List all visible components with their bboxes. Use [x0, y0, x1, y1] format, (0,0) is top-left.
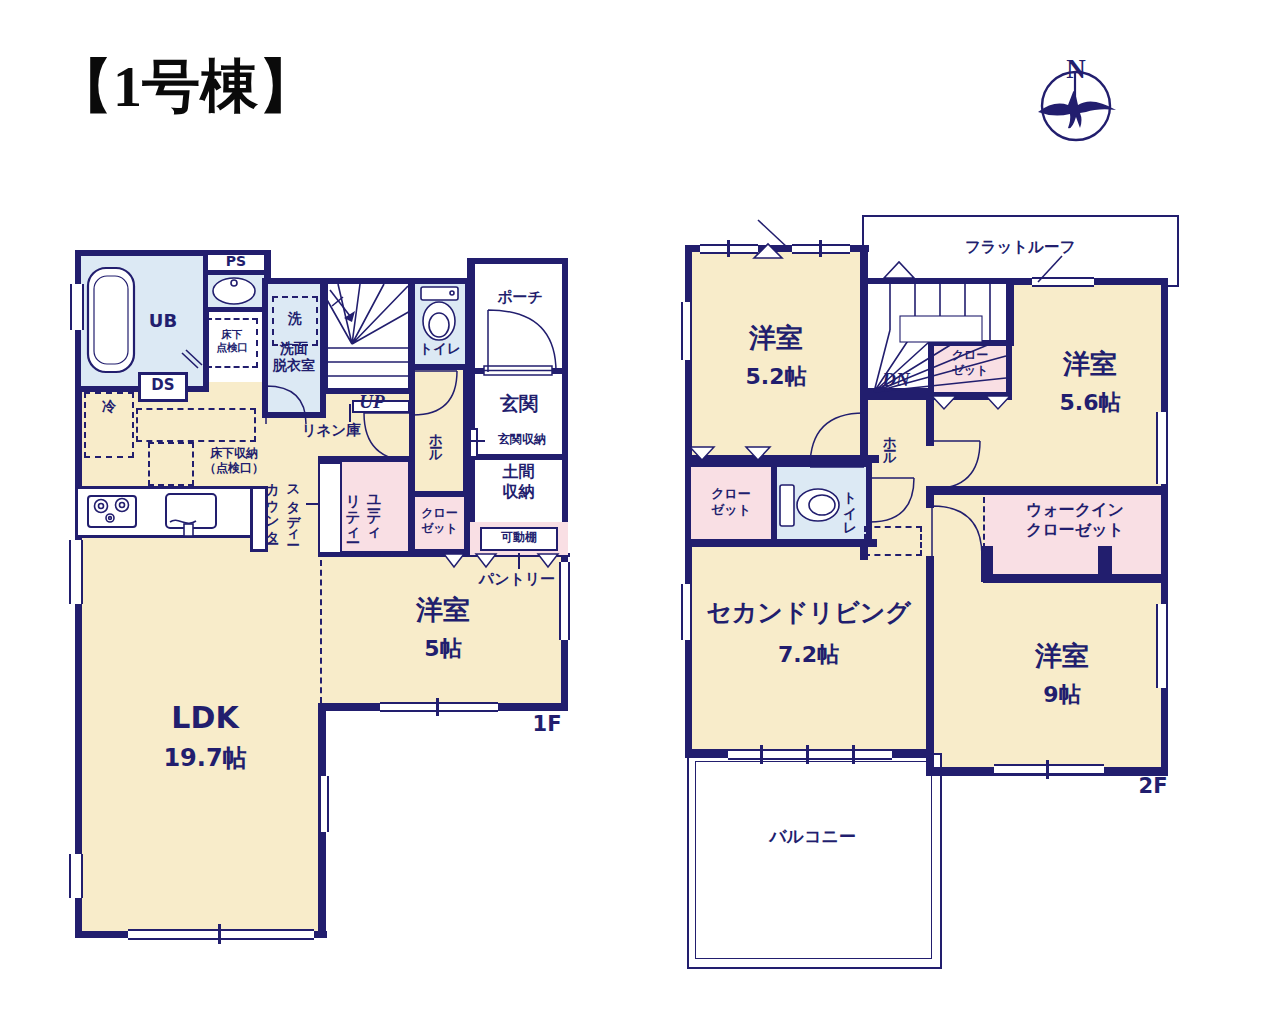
label-closet-1f: クロー ゼット: [410, 506, 469, 535]
window: [994, 764, 1104, 775]
window-tick: [819, 240, 822, 257]
study-counter-top: [318, 462, 342, 554]
label-hall-2f: ホール: [882, 410, 898, 476]
wall: [928, 486, 1168, 495]
window-balcony-sliding: [728, 749, 892, 760]
label-bedroom-1f: 洋室: [393, 594, 493, 627]
room-bedroom56: [1008, 278, 1168, 492]
label-up: UP: [350, 390, 394, 413]
label-entrance-storage: 玄関収納: [480, 432, 564, 447]
label-fridge: 冷: [84, 398, 134, 415]
label-bedroom56-size: 5.6帖: [1040, 390, 1140, 417]
label-linen: リネン庫: [294, 422, 368, 440]
label-washroom: 洗面 脱衣室: [256, 340, 332, 374]
entrance-storage-shelf: [469, 428, 478, 458]
label-movable-shelf: 可動棚: [480, 530, 558, 545]
stairs-1f: [322, 278, 414, 394]
leader-entrance-storage: [467, 440, 485, 442]
label-second-living: セカンドリビング: [687, 598, 930, 629]
label-floor-2f: 2F: [1130, 774, 1176, 800]
label-bedroom9: 洋室: [1012, 640, 1112, 673]
window: [128, 929, 314, 940]
label-entrance: 玄関: [483, 392, 555, 415]
label-hall-1f: ホール: [428, 408, 444, 472]
hall-hatch-outline: [864, 526, 922, 556]
label-bedroom52: 洋室: [696, 322, 856, 355]
label-walk-in-closet: ウォークイン クローゼット: [985, 500, 1165, 539]
window-tick: [436, 698, 439, 716]
balcony-inner-line: [695, 761, 932, 959]
label-ldk: LDK: [150, 700, 260, 737]
label-closet-stairs: クロー ゼット: [930, 348, 1010, 377]
label-pantry: パントリー: [466, 570, 568, 588]
wall: [983, 574, 1168, 583]
wall-stub: [1098, 546, 1112, 582]
window-tick: [1046, 760, 1049, 779]
label-porch: ポーチ: [478, 288, 562, 306]
label-ub: UB: [133, 310, 193, 332]
leader-pantry: [518, 553, 520, 569]
label-bedroom-1f-size: 5帖: [398, 636, 488, 663]
label-balcony: バルコニー: [687, 826, 938, 847]
label-underfloor-hatch: 床下 点検口: [206, 328, 258, 354]
label-ldk-size: 19.7帖: [135, 744, 275, 773]
compass-bird-icon: [1038, 72, 1116, 140]
label-toilet-2f: トイレ: [842, 474, 858, 536]
window: [70, 284, 84, 330]
window: [319, 776, 329, 832]
label-ps: PS: [203, 253, 269, 270]
label-utility: ユーティ リティー: [342, 464, 384, 556]
label-ds: DS: [138, 376, 188, 394]
window-tick: [760, 745, 763, 764]
underfloor-storage-outline-a: [136, 408, 256, 442]
wall: [926, 395, 934, 446]
floorplan-page: 【1号棟】: [0, 0, 1280, 1027]
label-toilet-1f: トイレ: [409, 340, 471, 356]
washstand-unit: [203, 270, 269, 312]
window: [1032, 277, 1094, 287]
label-bedroom56: 洋室: [1040, 348, 1140, 381]
label-bedroom52-size: 5.2帖: [696, 364, 856, 391]
label-washer: 洗: [272, 310, 318, 327]
leader-study-counter: [306, 503, 320, 505]
label-bedroom9-size: 9帖: [1012, 682, 1112, 709]
label-floor-1f: 1F: [524, 712, 570, 738]
label-dn: DN: [872, 368, 920, 391]
kitchen-counter: [75, 486, 267, 538]
window: [1156, 412, 1168, 484]
wall-stub: [981, 546, 993, 582]
window-tick: [852, 745, 855, 764]
room-bedroom52: [685, 245, 867, 467]
room-bedroom56-closet-front: [928, 396, 1012, 492]
label-second-living-size: 7.2帖: [687, 642, 930, 669]
label-flat-roof: フラットルーフ: [935, 238, 1105, 257]
window-tick: [218, 924, 221, 944]
window-tick: [806, 745, 809, 764]
window: [380, 702, 498, 712]
label-study-counter: スタディー カウンター: [262, 448, 304, 564]
window: [69, 854, 83, 898]
window: [1156, 604, 1168, 688]
page-title: 【1号棟】: [55, 52, 355, 123]
label-dirt-floor-storage: 土間 収納: [469, 462, 568, 501]
open-boundary-ldk-bedroom: [320, 560, 322, 703]
window: [69, 540, 83, 604]
compass-north-label: N: [1066, 54, 1086, 84]
window: [681, 302, 692, 360]
label-closet-2f: クロー ゼット: [687, 486, 775, 518]
window-tick: [727, 240, 730, 257]
room-porch: [469, 258, 568, 374]
